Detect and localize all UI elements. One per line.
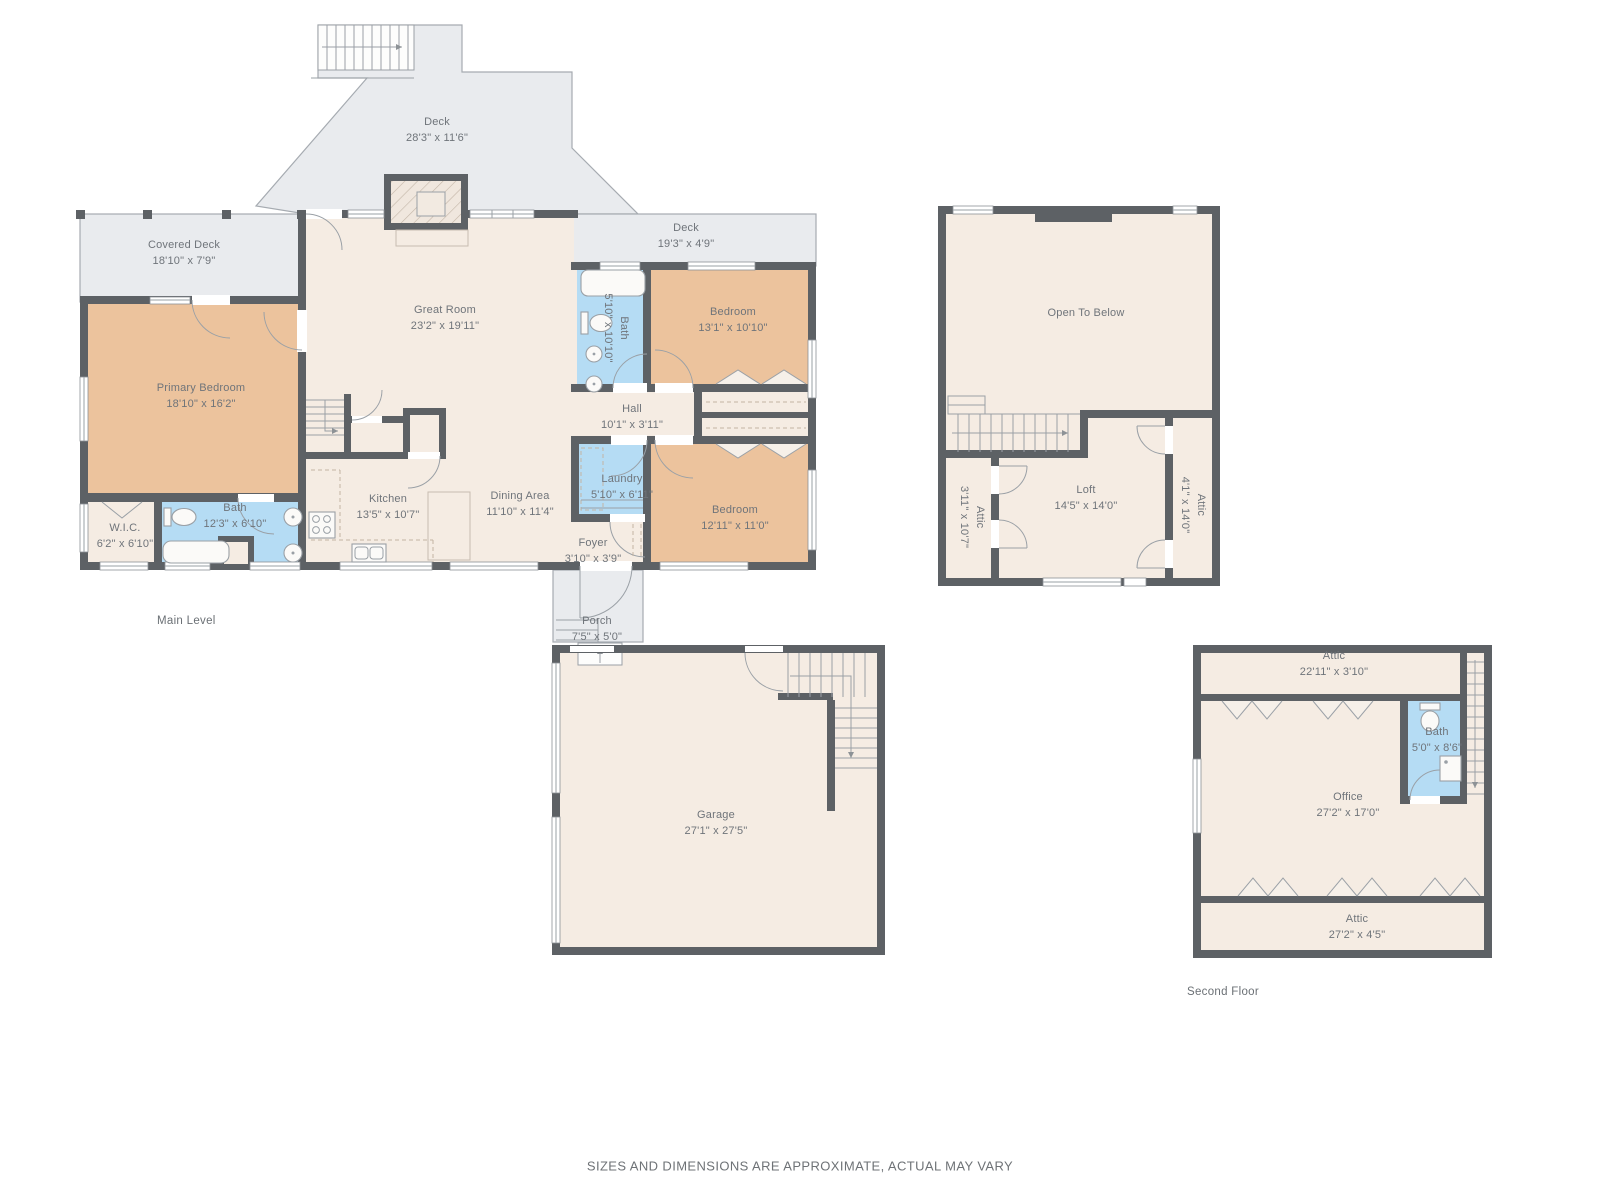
room-dims: 3'11" x 10'7" (955, 486, 971, 548)
room-label-bedroom-top: Bedroom 13'1" x 10'10" (698, 305, 767, 337)
room-label-bath-second: Bath 5'0" x 8'6" (1412, 725, 1462, 757)
room-label-kitchen: Kitchen 13'5" x 10'7" (357, 492, 420, 524)
room-name: Deck (658, 221, 715, 237)
room-name: Laundry (591, 472, 653, 488)
room-label-attic-bottom: Attic 27'2" x 4'5" (1329, 912, 1386, 944)
room-name: Hall (601, 402, 663, 418)
room-name: Covered Deck (148, 238, 220, 254)
room-label-deck-right: Deck 19'3" x 4'9" (658, 221, 715, 253)
room-dims: 27'2" x 4'5" (1329, 928, 1386, 944)
room-dims: 23'2" x 19'11" (411, 319, 479, 335)
room-dims: 5'0" x 8'6" (1412, 741, 1462, 757)
room-dims: 7'5" x 5'0" (572, 630, 622, 646)
main-level-plan (76, 25, 885, 955)
floorplan-page: Deck 28'3" x 11'6" Deck 19'3" x 4'9" Cov… (0, 0, 1600, 1200)
room-dims: 5'10" x 10'10" (599, 293, 615, 362)
room-name: Foyer (565, 536, 622, 552)
room-label-garage: Garage 27'1" x 27'5" (685, 808, 748, 840)
main-level-label: Main Level (157, 615, 216, 627)
room-name: Primary Bedroom (157, 381, 246, 397)
room-name: Dining Area (486, 489, 554, 505)
room-label-dining: Dining Area 11'10" x 11'4" (486, 489, 554, 521)
room-label-primary-bath: Bath 12'3" x 6'10" (204, 501, 267, 533)
deck-stair (311, 25, 414, 78)
room-label-attic-top: Attic 22'11" x 3'10" (1300, 649, 1368, 681)
room-name: Open To Below (1047, 306, 1124, 322)
room-name: Deck (406, 115, 468, 131)
room-dims: 14'5" x 14'0" (1055, 499, 1118, 515)
room-dims: 22'11" x 3'10" (1300, 665, 1368, 681)
room-label-attic-right: Attic 4'1" x 14'0" (1176, 477, 1208, 534)
room-dims: 6'2" x 6'10" (97, 537, 154, 553)
second-floor-label: Second Floor (1187, 986, 1259, 998)
room-label-covered-deck: Covered Deck 18'10" x 7'9" (148, 238, 220, 270)
room-name: Bath (1412, 725, 1462, 741)
room-name: Office (1317, 790, 1380, 806)
room-label-open-to-below: Open To Below (1047, 306, 1124, 322)
room-label-hall-bath: Bath 5'10" x 10'10" (599, 293, 631, 362)
room-name: Bedroom (701, 503, 769, 519)
room-dims: 4'1" x 14'0" (1176, 477, 1192, 534)
room-name: Great Room (411, 303, 479, 319)
disclaimer-text: SIZES AND DIMENSIONS ARE APPROXIMATE, AC… (587, 1159, 1013, 1174)
room-label-laundry: Laundry 5'10" x 6'11" (591, 472, 653, 504)
room-label-primary-bedroom: Primary Bedroom 18'10" x 16'2" (157, 381, 246, 413)
room-name: Attic (971, 486, 987, 548)
room-label-porch: Porch 7'5" x 5'0" (572, 614, 622, 646)
room-label-wic: W.I.C. 6'2" x 6'10" (97, 521, 154, 553)
room-dims: 12'3" x 6'10" (204, 517, 267, 533)
room-label-office: Office 27'2" x 17'0" (1317, 790, 1380, 822)
room-label-attic-left: Attic 3'11" x 10'7" (955, 486, 987, 548)
room-dims: 10'1" x 3'11" (601, 418, 663, 434)
room-name: Bath (615, 293, 631, 362)
room-dims: 3'10" x 3'9" (565, 552, 622, 568)
room-label-loft: Loft 14'5" x 14'0" (1055, 483, 1118, 515)
room-dims: 19'3" x 4'9" (658, 237, 715, 253)
room-dims: 18'10" x 7'9" (148, 254, 220, 270)
room-dims: 27'1" x 27'5" (685, 824, 748, 840)
room-name: Attic (1300, 649, 1368, 665)
room-name: Kitchen (357, 492, 420, 508)
room-name: W.I.C. (97, 521, 154, 537)
room-dims: 27'2" x 17'0" (1317, 806, 1380, 822)
room-dims: 18'10" x 16'2" (157, 397, 246, 413)
room-name: Attic (1329, 912, 1386, 928)
floorplan-drawing (0, 0, 1600, 1200)
room-name: Bedroom (698, 305, 767, 321)
room-dims: 28'3" x 11'6" (406, 131, 468, 147)
room-name: Loft (1055, 483, 1118, 499)
room-dims: 5'10" x 6'11" (591, 488, 653, 504)
room-label-great-room: Great Room 23'2" x 19'11" (411, 303, 479, 335)
room-label-bedroom-bottom: Bedroom 12'11" x 11'0" (701, 503, 769, 535)
room-label-hall: Hall 10'1" x 3'11" (601, 402, 663, 434)
room-label-foyer: Foyer 3'10" x 3'9" (565, 536, 622, 568)
room-dims: 11'10" x 11'4" (486, 505, 554, 521)
room-label-deck-top: Deck 28'3" x 11'6" (406, 115, 468, 147)
room-dims: 13'1" x 10'10" (698, 321, 767, 337)
room-name: Attic (1192, 477, 1208, 534)
room-dims: 12'11" x 11'0" (701, 519, 769, 535)
room-name: Garage (685, 808, 748, 824)
room-name: Porch (572, 614, 622, 630)
room-dims: 13'5" x 10'7" (357, 508, 420, 524)
room-name: Bath (204, 501, 267, 517)
